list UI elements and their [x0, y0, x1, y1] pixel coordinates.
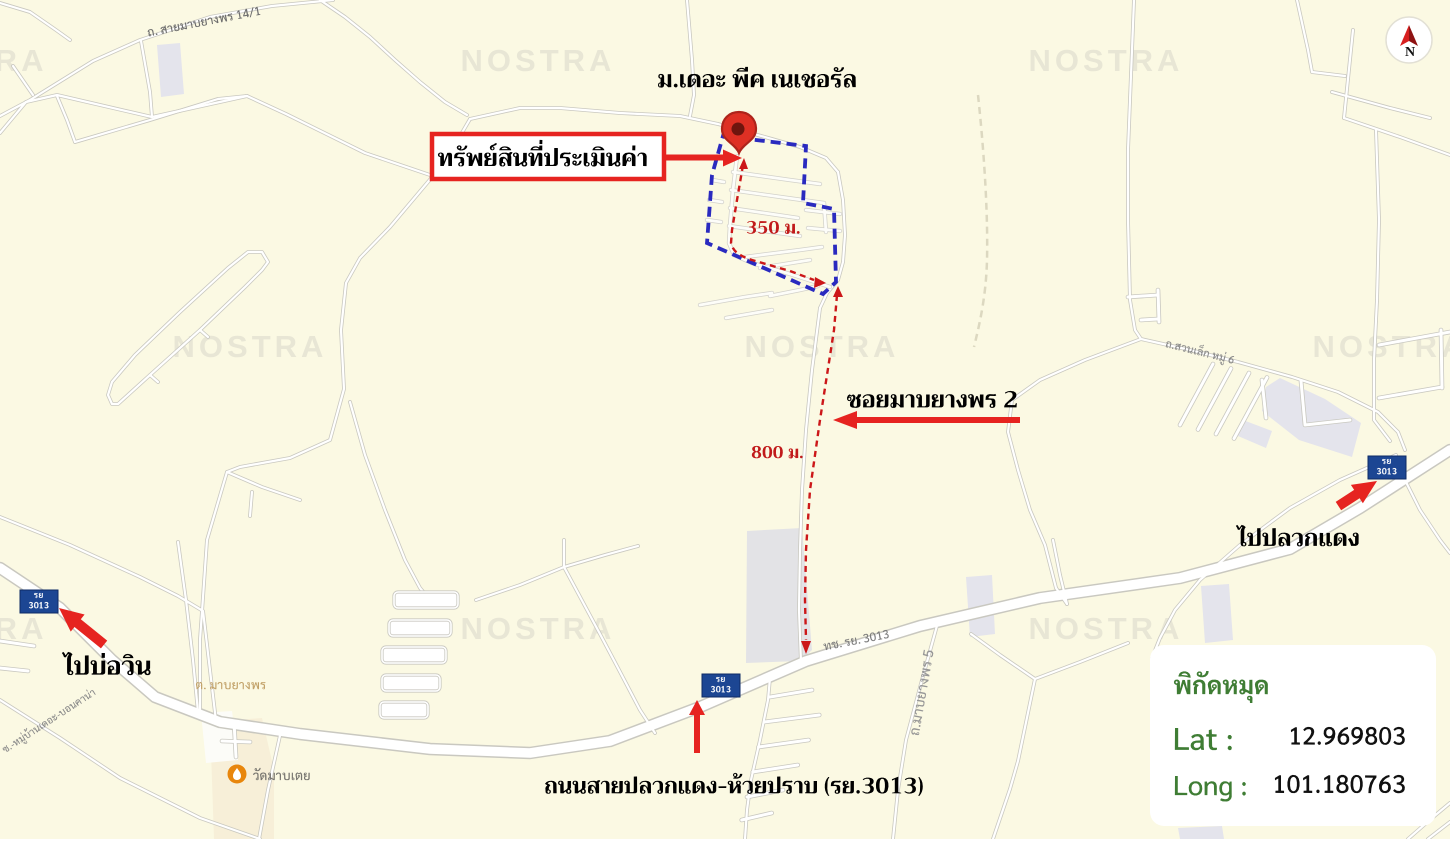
- svg-text:NOSTRA: NOSTRA: [461, 43, 616, 78]
- svg-text:NOSTRA: NOSTRA: [1029, 43, 1184, 78]
- svg-text:NOSTRA: NOSTRA: [0, 43, 47, 78]
- svg-text:N: N: [1405, 45, 1415, 60]
- svg-text:NOSTRA: NOSTRA: [745, 329, 900, 364]
